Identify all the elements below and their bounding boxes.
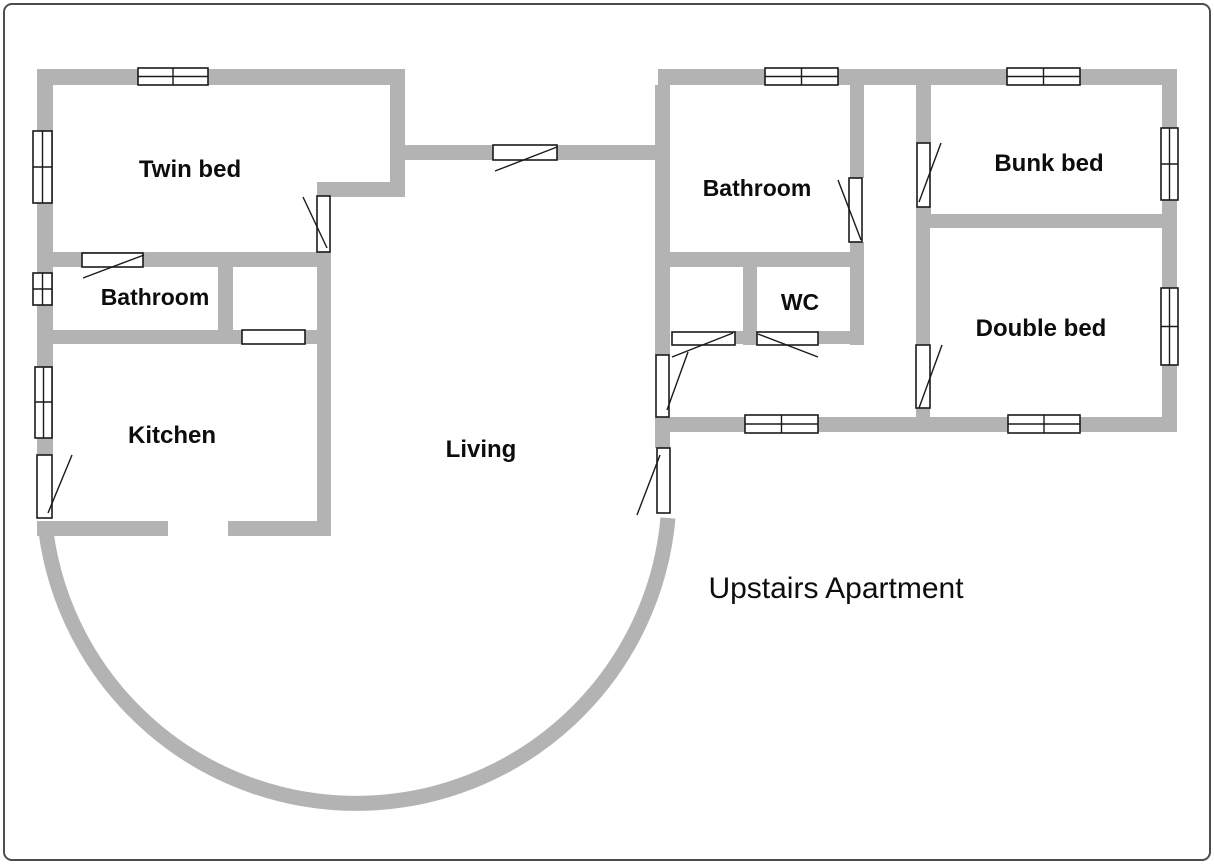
room-label-kitchen: Kitchen <box>128 422 216 449</box>
door-corridor-slider <box>493 145 557 171</box>
bay-wall-arc <box>46 518 668 803</box>
window-bathroom-left <box>33 273 52 305</box>
door-bay-entry <box>637 448 670 515</box>
wall-double-left-lower <box>916 408 930 417</box>
wall-kitchen-bottom-right <box>228 521 331 536</box>
door-double-bed <box>916 345 942 408</box>
wall-living-left <box>317 252 331 536</box>
wall-bathroom-left-right <box>218 267 233 330</box>
wall-wc-top <box>658 252 864 267</box>
room-label-wc: WC <box>781 289 819 315</box>
wall-top-left-wing <box>37 69 405 85</box>
room-label-bathroom-right: Bathroom <box>703 175 812 201</box>
door-storage <box>672 332 735 357</box>
window-bunk-top <box>1007 68 1080 85</box>
window-double-bottom <box>1008 415 1080 433</box>
window-bunk-right <box>1161 128 1178 200</box>
wall-right-outer <box>1162 69 1177 432</box>
room-label-bathroom-left: Bathroom <box>101 284 210 310</box>
room-label-living: Living <box>446 436 517 463</box>
door-twin-bathroom-slider <box>82 253 144 278</box>
wall-twin-right <box>390 69 405 197</box>
door-wc <box>757 332 818 357</box>
wall-wc-bottom <box>818 331 864 344</box>
wall-top-right-wing <box>658 69 1177 85</box>
window-twin-top <box>138 68 208 85</box>
wall-hall-left-upper <box>655 85 670 355</box>
wall-bunk-bottom <box>916 214 1177 228</box>
wall-twin-jog <box>317 182 405 197</box>
wall-bathroom-right-side-upper <box>850 85 864 178</box>
floor-plan: Twin bed Bathroom Kitchen Living Bathroo… <box>0 0 1214 864</box>
window-twin-left <box>33 131 52 203</box>
wall-right-wing-bottom <box>655 417 1177 432</box>
door-twin-bed <box>303 196 330 252</box>
window-hall-bottom <box>745 415 818 433</box>
room-label-bunk-bed: Bunk bed <box>994 150 1103 177</box>
wall-hall-left-stub <box>655 432 670 448</box>
window-double-right <box>1161 288 1178 365</box>
floor-plan-svg: Twin bed Bathroom Kitchen Living Bathroo… <box>0 0 1214 864</box>
wall-bunk-left-upper <box>916 85 931 143</box>
door-kitchen <box>37 455 72 518</box>
door-bunk-bed <box>917 143 941 207</box>
wall-kitchen-bottom-left <box>37 521 168 536</box>
wall-storage-wc-stub <box>735 331 743 344</box>
wall-bathroom-left-bottom-a <box>37 330 242 344</box>
window-bathroom-right-top <box>765 68 838 85</box>
window-alcove-bottom <box>242 330 305 344</box>
plan-title: Upstairs Apartment <box>708 572 964 605</box>
door-hall-entry <box>656 352 688 417</box>
wall-bathroom-left-bottom-b <box>305 330 317 344</box>
wall-wc-left <box>743 267 757 345</box>
room-label-double-bed: Double bed <box>976 315 1107 342</box>
window-kitchen-left <box>35 367 52 438</box>
wall-bathroom-left-top <box>37 252 331 267</box>
wall-double-left-upper <box>916 228 930 345</box>
door-bathroom-right <box>838 178 862 242</box>
room-label-twin-bed: Twin bed <box>139 156 241 183</box>
